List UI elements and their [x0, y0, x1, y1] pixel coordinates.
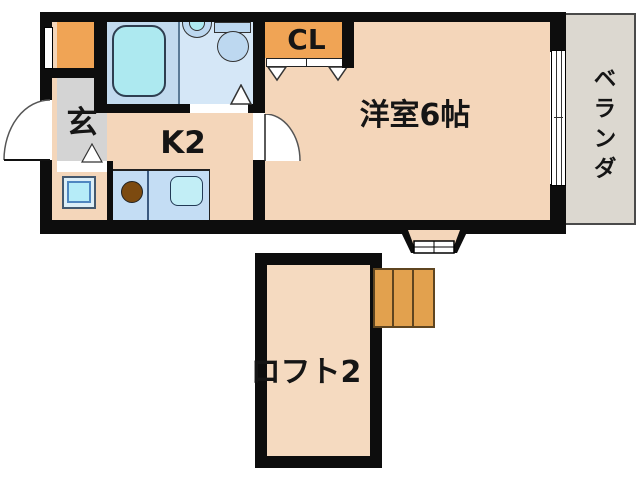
- balcony-window-rail-1: [556, 51, 557, 185]
- entry-window-icon: [44, 27, 53, 69]
- counter-divider: [147, 171, 149, 220]
- bath-partition-line: [178, 22, 180, 104]
- stairs-icon: [373, 268, 435, 328]
- kitchen-sink-icon: [170, 176, 203, 206]
- floor-plan: 玄 K2 CL 洋室6帖 ベランダ ロフト2: [0, 0, 640, 480]
- room-door-arc-icon: [263, 114, 303, 163]
- closet-door-markers: [267, 66, 349, 82]
- washing-machine-tub: [67, 181, 91, 203]
- wall-right-upper: [550, 12, 566, 52]
- bay-window-icon: [398, 230, 470, 254]
- stair-tread-line-2: [412, 270, 414, 326]
- kitchen-label: K2: [128, 124, 238, 162]
- veranda-label: ベランダ: [586, 46, 618, 206]
- wall-storage-bottom: [52, 68, 94, 78]
- wall-counter-left: [107, 161, 113, 220]
- bathtub-icon: [112, 25, 166, 97]
- closet-label: CL: [265, 21, 348, 58]
- storage-box: [57, 22, 94, 68]
- range-burner-icon: [121, 181, 143, 203]
- wall-bottom: [40, 220, 566, 234]
- loft-label: ロフト2: [250, 350, 362, 388]
- entrance-step-marker: [80, 143, 104, 164]
- stair-tread-line-1: [392, 270, 394, 326]
- wall-center-lower: [253, 160, 265, 220]
- main-room-label: 洋室6帖: [340, 93, 490, 131]
- wall-center-upper: [253, 12, 265, 113]
- toilet-bowl: [217, 31, 249, 62]
- bath-door-marker: [229, 84, 253, 106]
- balcony-window-rail-2: [561, 51, 562, 185]
- entrance-door-arc-icon: [2, 98, 54, 164]
- balcony-window-latch: [554, 117, 563, 118]
- entrance-label: 玄: [57, 98, 107, 140]
- balcony-window-icon: [551, 50, 566, 186]
- wall-right-lower: [550, 184, 566, 234]
